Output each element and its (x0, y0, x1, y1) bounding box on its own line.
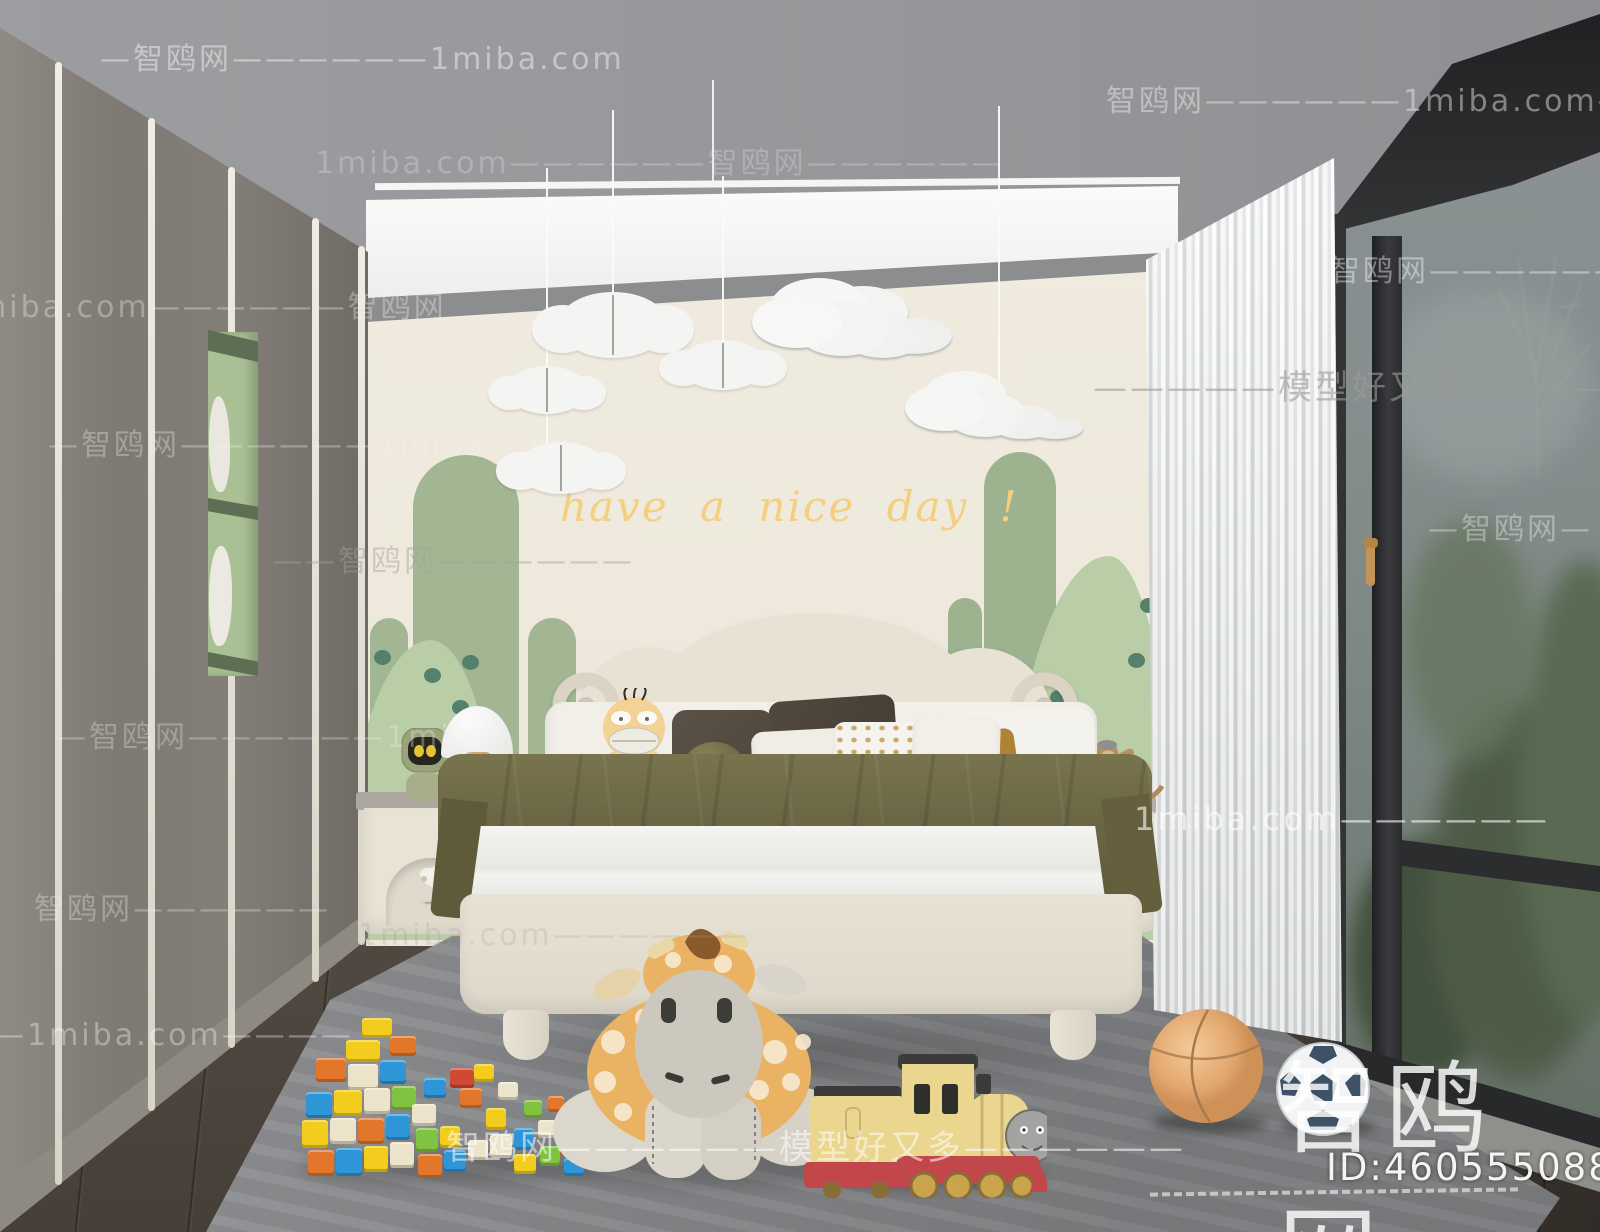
toy-block (524, 1100, 542, 1118)
toy-block (386, 1114, 410, 1140)
toy-block (390, 1036, 416, 1056)
cloud-pendant-lamp (558, 292, 668, 358)
mural-bush-dot (424, 668, 441, 683)
fluffy-cloud (752, 296, 842, 348)
bed-leg (1050, 1010, 1096, 1060)
wardrobe-trim (312, 218, 319, 982)
lamp-seam (560, 445, 562, 492)
toy-block (348, 1064, 378, 1090)
toy-block (490, 1134, 512, 1158)
tree-foliage (1405, 520, 1535, 760)
toy-block (486, 1108, 506, 1130)
lamp-wire (998, 106, 1000, 436)
toy-block (468, 1140, 488, 1160)
toy-block (474, 1064, 494, 1082)
toy-block (460, 1088, 482, 1108)
window-handle (1366, 542, 1375, 586)
toy-block (364, 1088, 390, 1114)
toy-block (498, 1082, 518, 1100)
toy-block (380, 1060, 406, 1084)
toy-block (450, 1068, 474, 1088)
lamp-wire (712, 80, 714, 182)
lamp-seam (546, 368, 548, 411)
mural-bush-dot (374, 650, 391, 665)
cloud-pendant-lamp (507, 366, 587, 414)
toy-block (444, 1150, 466, 1172)
toy-block (418, 1154, 442, 1178)
giraffe-plush (553, 922, 843, 1184)
wall-quote: have a nice day ! (560, 482, 1020, 531)
toy-block (412, 1104, 436, 1126)
toy-block (302, 1120, 328, 1148)
wardrobe-trim (148, 118, 155, 1111)
window-handle-base (1363, 538, 1378, 548)
children-bedroom-3d-render: have a nice day ! (0, 0, 1600, 1232)
toy-block (416, 1128, 438, 1152)
toy-block (362, 1018, 392, 1038)
site-logo: 智鸥网 (1278, 1028, 1600, 1232)
lamp-seam (722, 343, 724, 388)
toy-train (802, 1046, 1047, 1198)
toy-block (306, 1092, 332, 1118)
toy-block (358, 1118, 384, 1144)
niche-plush-toy (209, 546, 232, 646)
fluffy-cloud (905, 385, 985, 431)
toy-block (334, 1090, 362, 1116)
toy-block (346, 1040, 380, 1062)
mural-bush-dot (462, 655, 479, 670)
toy-block (514, 1128, 534, 1150)
lamp-wire (722, 176, 724, 346)
toy-block (364, 1146, 388, 1172)
lamp-seam (612, 295, 614, 354)
lamp-wire (612, 110, 614, 300)
toy-block (336, 1148, 362, 1176)
bare-tree-branches (1478, 248, 1600, 478)
toy-block (330, 1118, 356, 1144)
basketball (1146, 1006, 1266, 1126)
toy-block (390, 1142, 414, 1168)
mural-bush-dot (1128, 653, 1145, 668)
toy-block (514, 1154, 536, 1174)
cloud-pendant-lamp (680, 340, 766, 390)
toy-block (308, 1150, 334, 1176)
cloud-pendant-lamp (517, 442, 605, 494)
model-id-label: ID:460555088 (1326, 1146, 1600, 1189)
toy-block (316, 1058, 346, 1082)
toy-block (440, 1126, 460, 1148)
curtain (1144, 156, 1344, 1046)
toy-block (424, 1078, 446, 1098)
wardrobe-trim (55, 62, 62, 1185)
